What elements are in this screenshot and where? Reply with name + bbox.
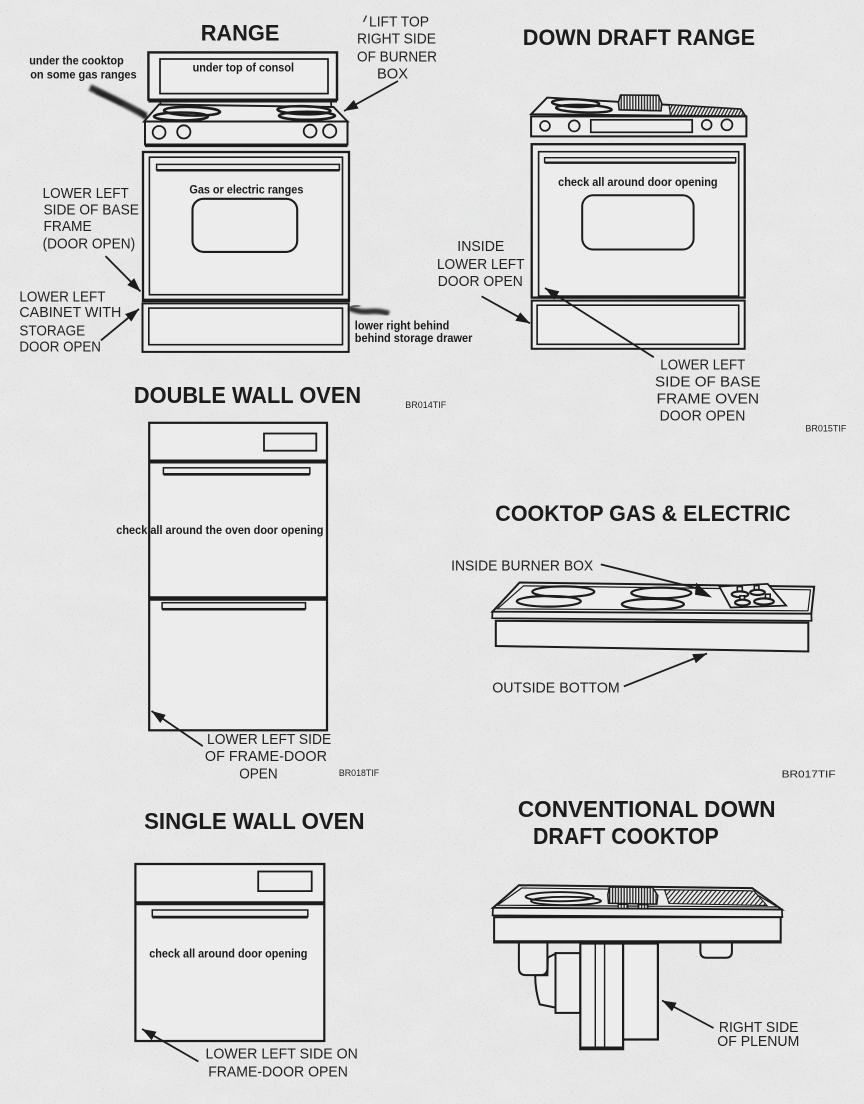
svg-text:FRAME-DOOR OPEN: FRAME-DOOR OPEN: [208, 1064, 348, 1080]
svg-text:OF BURNER: OF BURNER: [357, 49, 437, 65]
svg-text:LOWER LEFT: LOWER LEFT: [660, 358, 745, 374]
svg-text:OF FRAME-DOOR: OF FRAME-DOOR: [205, 749, 327, 765]
svg-text:BR017TIF: BR017TIF: [782, 769, 836, 780]
svg-text:SIDE OF BASE: SIDE OF BASE: [44, 202, 139, 218]
svg-text:(DOOR OPEN): (DOOR OPEN): [43, 237, 136, 253]
svg-text:FRAME: FRAME: [44, 219, 92, 235]
svg-text:LIFT TOP: LIFT TOP: [369, 15, 429, 31]
svg-text:INSIDE: INSIDE: [457, 239, 504, 255]
svg-text:lower right behind: lower right behind: [355, 318, 450, 332]
svg-text:BOX: BOX: [377, 67, 408, 83]
svg-text:INSIDE BURNER BOX: INSIDE BURNER BOX: [451, 558, 594, 574]
svg-text:DOOR OPEN: DOOR OPEN: [438, 274, 523, 290]
svg-text:OPEN: OPEN: [239, 766, 278, 782]
svg-text:RANGE: RANGE: [201, 20, 280, 45]
svg-text:Gas or electric ranges: Gas or electric ranges: [189, 183, 303, 197]
svg-text:BR014TIF: BR014TIF: [405, 400, 446, 411]
svg-text:OF PLENUM: OF PLENUM: [717, 1034, 799, 1050]
svg-text:check all around the oven door: check all around the oven door opening: [116, 523, 323, 537]
svg-text:DOOR OPEN: DOOR OPEN: [19, 340, 101, 356]
svg-text:SINGLE WALL OVEN: SINGLE WALL OVEN: [144, 808, 364, 834]
svg-text:on some gas ranges: on some gas ranges: [30, 67, 137, 81]
svg-text:STORAGE: STORAGE: [19, 324, 85, 340]
svg-text:DOWN DRAFT RANGE: DOWN DRAFT RANGE: [523, 25, 755, 50]
svg-text:LOWER LEFT: LOWER LEFT: [43, 186, 129, 202]
svg-text:check all around door opening: check all around door opening: [558, 175, 718, 189]
svg-text:check all around door opening: check all around door opening: [149, 946, 307, 960]
svg-text:BR015TIF: BR015TIF: [805, 424, 846, 435]
svg-text:LOWER LEFT: LOWER LEFT: [19, 290, 105, 306]
svg-text:BR018TIF: BR018TIF: [339, 768, 379, 779]
svg-text:LOWER LEFT: LOWER LEFT: [437, 257, 525, 273]
svg-text:behind storage drawer: behind storage drawer: [355, 331, 473, 345]
svg-text:CONVENTIONAL DOWN: CONVENTIONAL DOWN: [518, 796, 776, 822]
svg-text:under the cooktop: under the cooktop: [29, 53, 123, 67]
svg-text:DOUBLE WALL OVEN: DOUBLE WALL OVEN: [134, 382, 361, 408]
svg-text:CABINET WITH: CABINET WITH: [19, 305, 121, 321]
svg-text:LOWER LEFT SIDE ON: LOWER LEFT SIDE ON: [206, 1047, 358, 1063]
svg-text:DOOR OPEN: DOOR OPEN: [660, 408, 746, 424]
svg-text:LOWER LEFT SIDE: LOWER LEFT SIDE: [207, 732, 331, 748]
svg-text:SIDE OF BASE: SIDE OF BASE: [655, 374, 761, 390]
svg-text:COOKTOP GAS & ELECTRIC: COOKTOP GAS & ELECTRIC: [495, 501, 790, 526]
svg-text:RIGHT SIDE: RIGHT SIDE: [357, 32, 436, 48]
svg-text:OUTSIDE BOTTOM: OUTSIDE BOTTOM: [492, 680, 620, 696]
svg-text:under top of consol: under top of consol: [193, 60, 294, 74]
svg-text:DRAFT COOKTOP: DRAFT COOKTOP: [533, 823, 719, 849]
svg-text:FRAME OVEN: FRAME OVEN: [657, 391, 760, 407]
